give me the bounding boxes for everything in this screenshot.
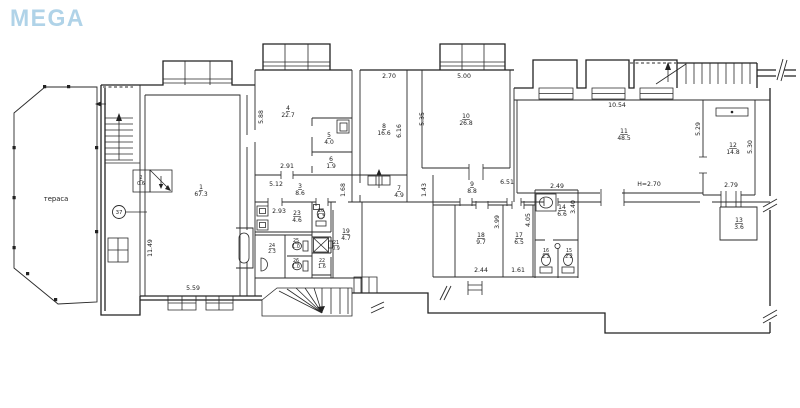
room-1-number: 1 [199,184,203,191]
dim-3-99: 3.99 [494,215,501,229]
window-bays [163,44,673,310]
room-4-number: 4 [286,105,290,112]
dim-2-79: 2.79 [724,182,738,189]
room-8-number: 8 [382,123,386,130]
dim-1-68: 1.68 [340,183,347,197]
interior-walls [140,70,770,296]
room-21-area: 0.9 [332,246,340,252]
dim-h-2-70: H=2.70 [637,181,661,188]
reference-circle-label: 37 [116,210,123,216]
dim-1-61: 1.61 [511,267,525,274]
room-24-area: 2.3 [268,249,276,255]
room-1-area: 67.3 [194,191,208,198]
room-3-number: 3 [298,183,302,190]
room-23-area: 4.6 [292,217,302,224]
outer-walls [101,44,796,333]
room-15-area: 2.2 [565,254,573,260]
room-14-area: 6.6 [557,211,567,218]
room-17-number: 17 [515,232,523,239]
room-7-area: 4.9 [394,192,404,199]
room-13-number: 13 [735,217,743,224]
room-10-number: 10 [462,113,470,120]
dim-1-43: 1.43 [421,183,428,197]
dim-2-49: 2.49 [550,183,564,190]
dim-5-88: 5.88 [258,110,265,124]
dim-5-00: 5.00 [457,73,471,80]
dim-5-12: 5.12 [269,181,283,188]
room-3-area: 8.6 [295,190,305,197]
dim-2-93: 2.93 [272,208,286,215]
dim-2-44: 2.44 [474,267,488,274]
room-20-number: 20 [318,208,324,214]
room-22-area: 1.6 [318,264,326,270]
room-19-area: 4.7 [341,235,351,242]
staircase-top-left [95,87,140,163]
dim-4-05: 4.05 [525,213,532,227]
staircase-fan [262,288,352,316]
room-25-number: 25 [293,238,299,244]
fixtures [108,108,748,295]
terrace-label: тераса [44,195,69,203]
room-4-area: 22.7 [281,112,295,119]
room-15-number: 15 [566,248,572,254]
room-12-number: 12 [729,142,737,149]
room-14-number: 14 [558,204,566,211]
floor-plan: 37 тераса 1 67.3 2 0.6 3 8.6 4 22.7 5 4.… [0,0,800,408]
room-7-number: 7 [397,185,401,192]
reference-circle-37: 37 [113,206,148,219]
dim-6-16: 6.16 [396,124,403,138]
room-21-number: 21 [333,240,339,246]
room-10-area: 26.8 [459,120,473,127]
room-16-number: 16 [543,248,549,254]
room-18-number: 18 [477,232,485,239]
room-12-area: 14.8 [726,149,740,156]
room-6-area: 1.9 [326,163,336,170]
room-13-area: 3.6 [734,224,744,231]
room-23-number: 23 [293,210,301,217]
dimension-labels: 11.49 5.59 2.93 5.88 2.91 5.12 1.68 2.70… [147,73,754,292]
room-18-area: 9.7 [476,239,486,246]
room-11-area: 48.5 [617,135,631,142]
room-26-area: 1.0 [292,264,300,270]
room-9-number: 9 [470,181,474,188]
room-11-number: 11 [620,128,628,135]
room-17-area: 6.5 [514,239,524,246]
room-19-number: 19 [342,228,350,235]
staircase-top-right [630,62,750,84]
room-9-area: 8.8 [467,188,477,195]
room-16-area: 2.2 [542,254,550,260]
dim-3-40: 3.40 [570,200,577,214]
room-22-number: 22 [319,258,325,264]
room-20-area: 1.3 [317,214,325,220]
room-5-area: 4.0 [324,139,334,146]
room-5-number: 5 [327,132,331,139]
dim-6-51: 6.51 [500,179,514,186]
dim-5-29: 5.29 [695,122,702,136]
dim-2-91: 2.91 [280,163,294,170]
room-6-number: 6 [329,156,333,163]
dim-5-35: 5.35 [419,112,426,126]
room-8-area: 16.6 [377,130,391,137]
room-24-number: 24 [269,243,275,249]
room-26-number: 26 [293,258,299,264]
room-2-area: 0.6 [137,181,145,187]
dim-11-49: 11.49 [147,239,154,257]
dim-10-54: 10.54 [608,102,626,109]
dim-5-59: 5.59 [186,285,200,292]
dim-5-30: 5.30 [747,140,754,154]
room-2-number: 2 [139,175,142,181]
dim-2-70: 2.70 [382,73,396,80]
room-25-area: 1.0 [292,244,300,250]
